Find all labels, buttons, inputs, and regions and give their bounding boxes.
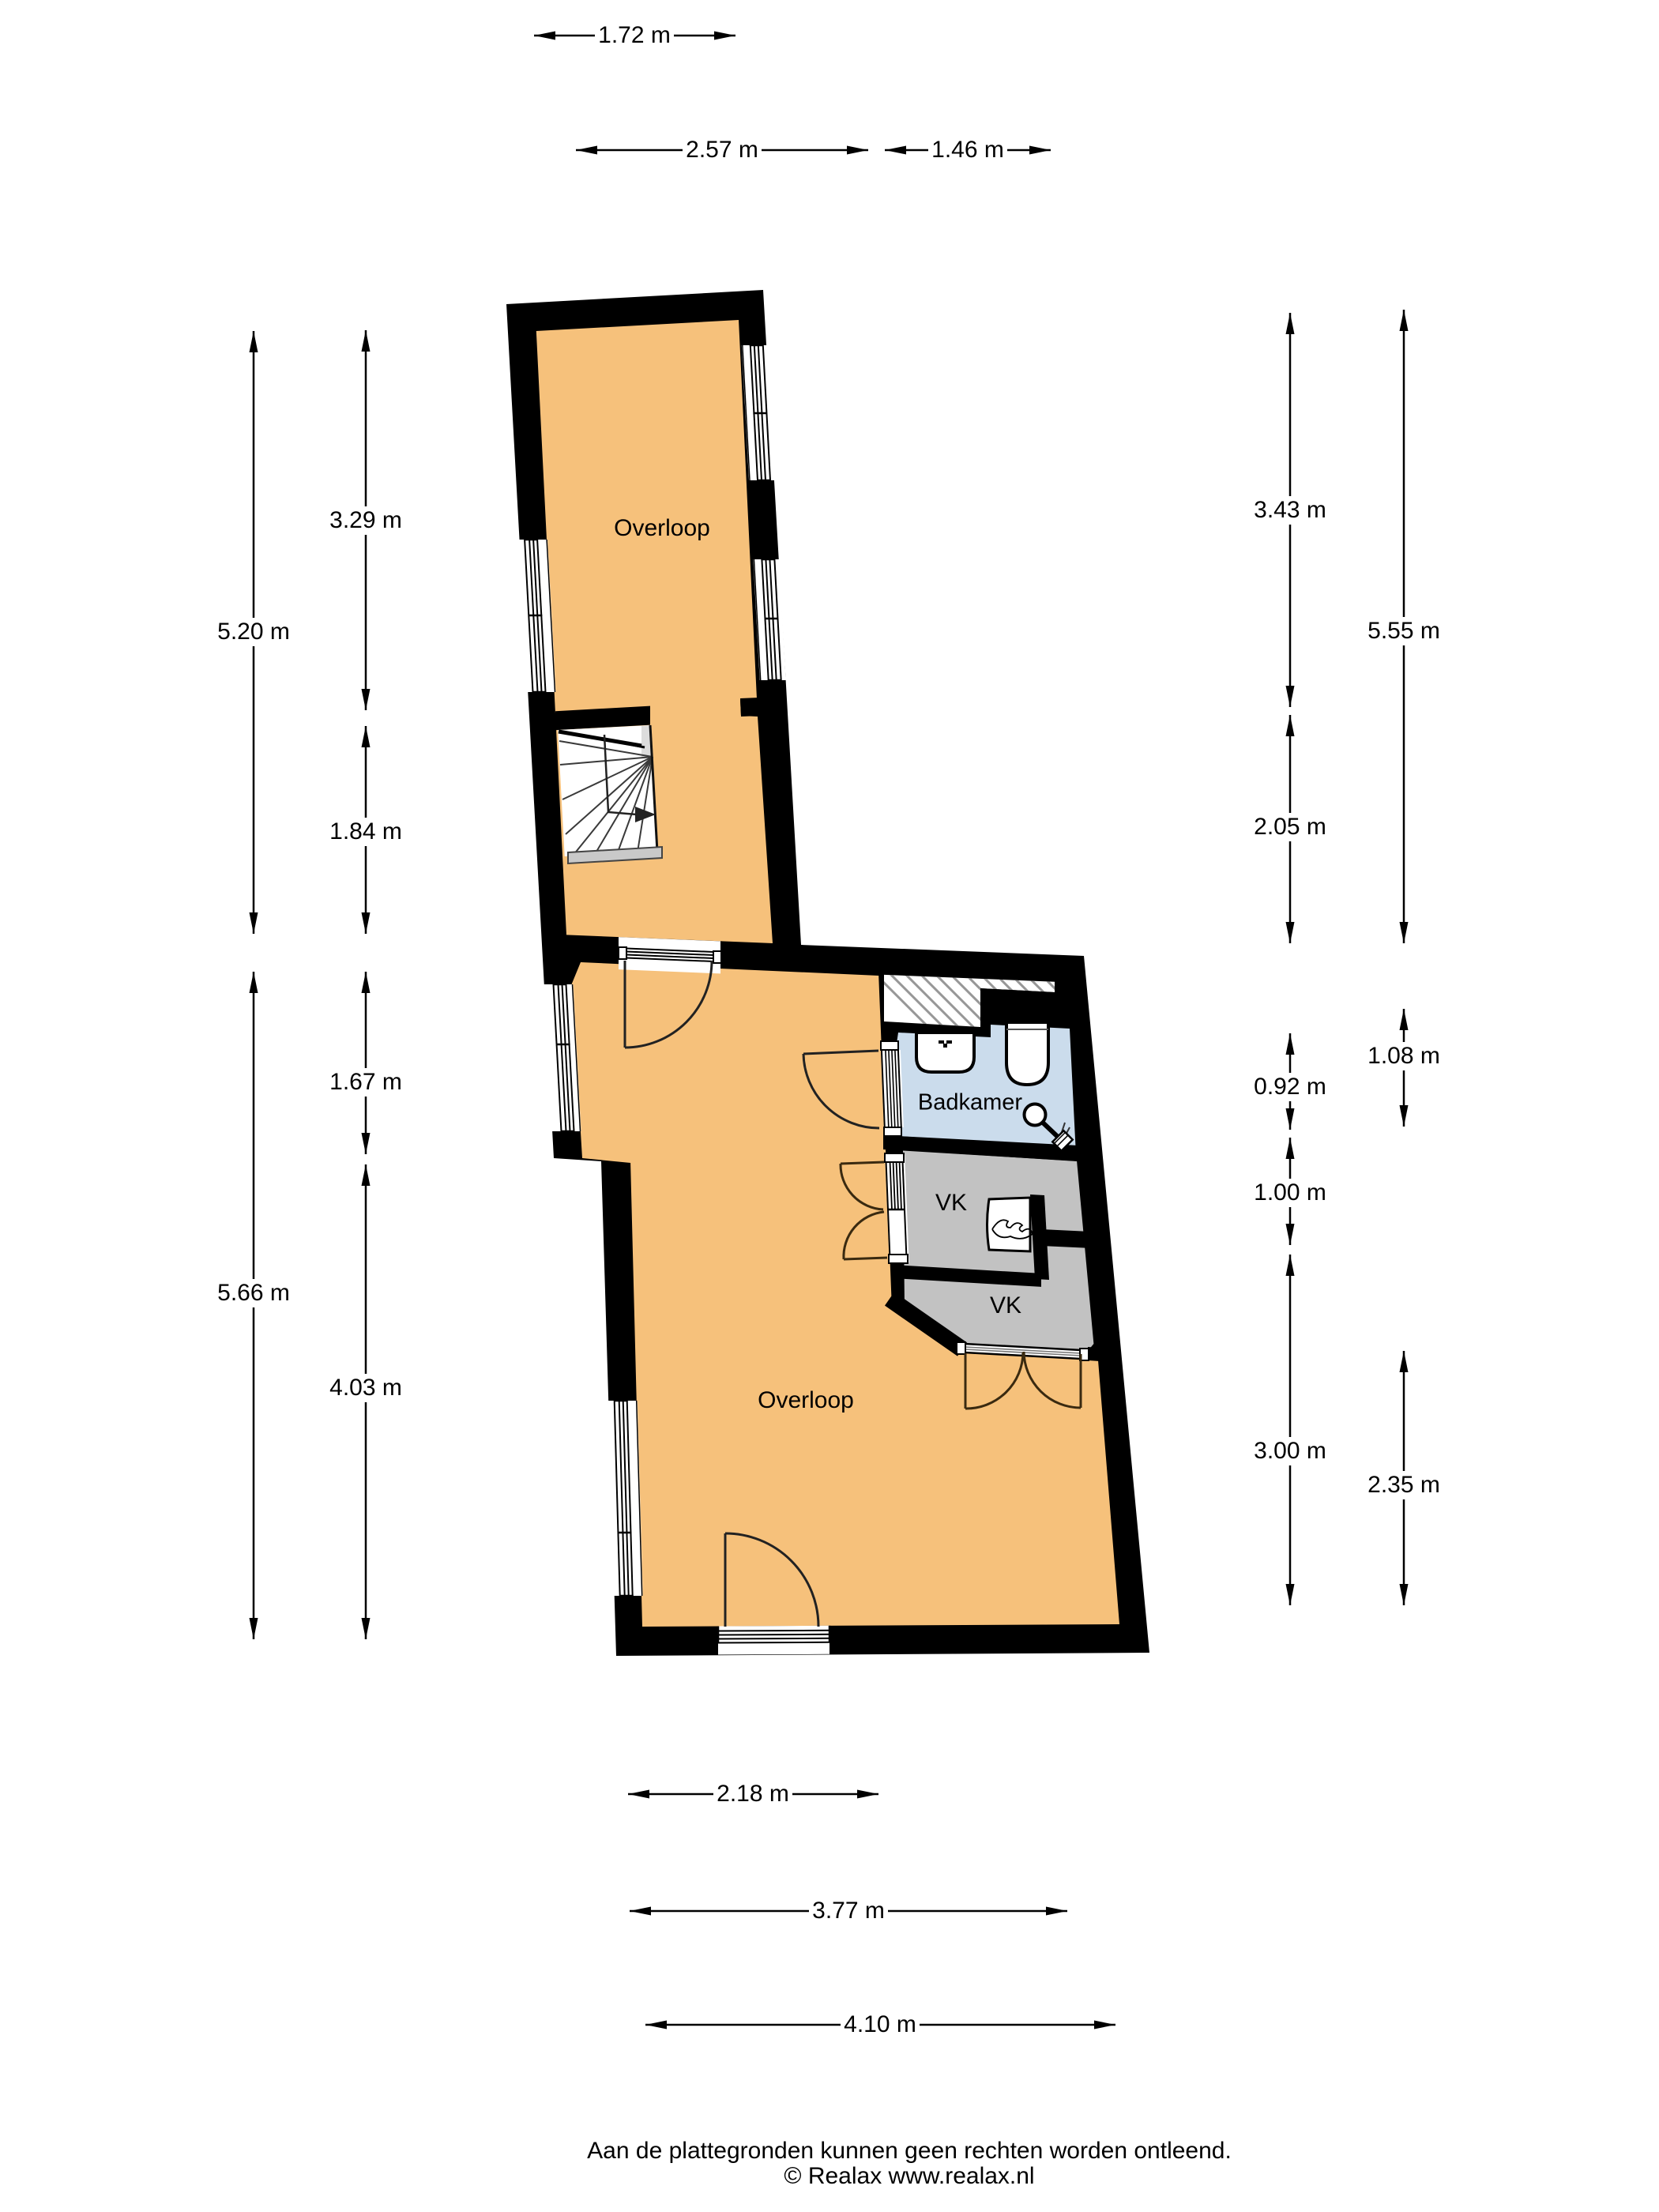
svg-text:1.84 m: 1.84 m [329,818,402,845]
svg-text:1.08 m: 1.08 m [1367,1043,1440,1069]
svg-text:0.92 m: 0.92 m [1254,1074,1326,1100]
svg-text:5.66 m: 5.66 m [217,1280,290,1306]
svg-text:5.20 m: 5.20 m [217,619,290,645]
svg-text:Overloop: Overloop [758,1387,854,1413]
svg-text:Aan de plattegronden kunnen ge: Aan de plattegronden kunnen geen rechten… [587,2138,1232,2164]
svg-text:5.55 m: 5.55 m [1367,618,1440,644]
svg-text:3.43 m: 3.43 m [1254,497,1326,523]
svg-text:1.46 m: 1.46 m [931,137,1004,163]
svg-text:1.67 m: 1.67 m [329,1069,402,1095]
svg-text:Overloop: Overloop [614,515,710,541]
svg-text:VK: VK [990,1292,1021,1319]
svg-text:2.35 m: 2.35 m [1367,1472,1440,1498]
svg-text:VK: VK [935,1190,967,1216]
svg-text:2.05 m: 2.05 m [1254,814,1326,840]
svg-text:3.77 m: 3.77 m [812,1898,885,1924]
svg-text:1.72 m: 1.72 m [598,22,671,48]
svg-text:2.18 m: 2.18 m [717,1781,789,1807]
svg-text:3.00 m: 3.00 m [1254,1438,1326,1464]
svg-text:© Realax www.realax.nl: © Realax www.realax.nl [784,2163,1034,2189]
svg-text:Badkamer: Badkamer [918,1090,1023,1115]
svg-text:4.10 m: 4.10 m [844,2011,916,2037]
svg-text:4.03 m: 4.03 m [329,1375,402,1401]
svg-text:2.57 m: 2.57 m [686,137,758,163]
svg-text:3.29 m: 3.29 m [329,507,402,533]
svg-text:1.00 m: 1.00 m [1254,1179,1326,1206]
